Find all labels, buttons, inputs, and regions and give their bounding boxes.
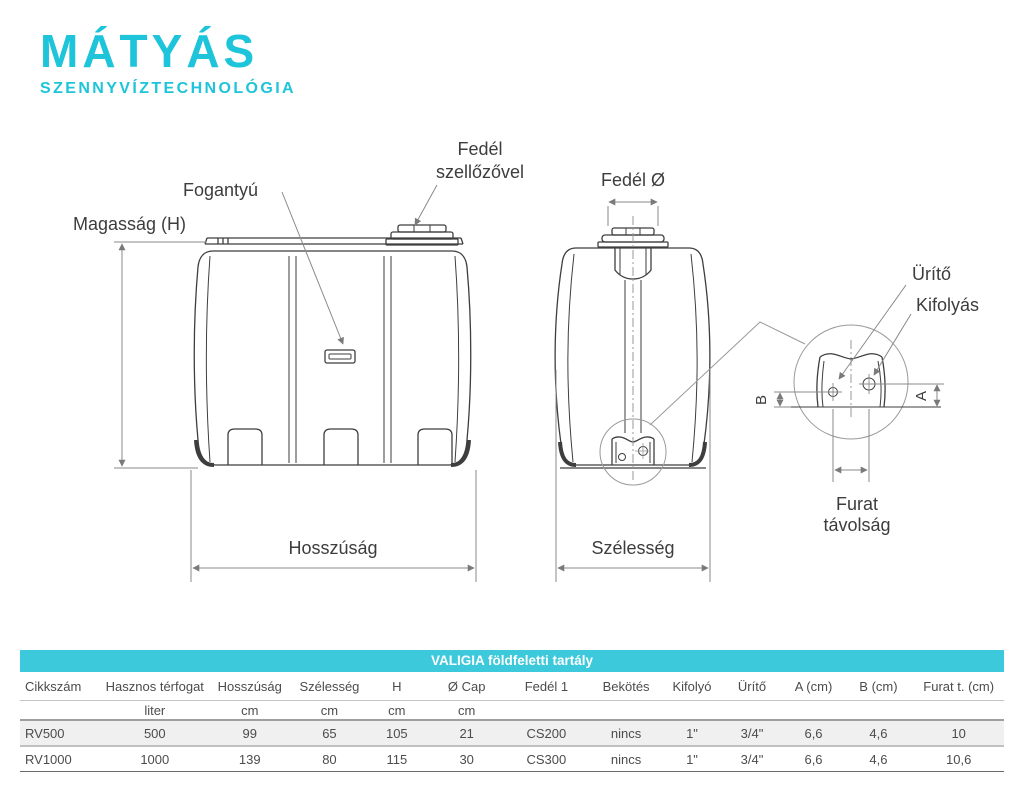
unit-cell bbox=[844, 701, 914, 721]
col-fedel1: Fedél 1 bbox=[504, 672, 589, 701]
label-urito: Ürítő bbox=[912, 264, 951, 284]
cell: 3/4" bbox=[721, 746, 784, 772]
col-urito: Ürítő bbox=[721, 672, 784, 701]
col-szelesseg: Szélesség bbox=[295, 672, 365, 701]
unit-cell bbox=[663, 701, 720, 721]
unit-cell bbox=[504, 701, 589, 721]
label-fedel-line1: Fedél bbox=[457, 139, 502, 159]
logo-title: MÁTYÁS bbox=[40, 28, 296, 74]
col-o-cap: Ø Cap bbox=[429, 672, 504, 701]
cell: 30 bbox=[429, 746, 504, 772]
table-title: VALIGIA földfeletti tartály bbox=[20, 650, 1004, 672]
table-row: RV500 500 99 65 105 21 CS200 nincs 1" 3/… bbox=[20, 720, 1004, 746]
front-view-drawing bbox=[555, 216, 710, 485]
label-furat-line2: távolság bbox=[823, 515, 890, 535]
cell: CS300 bbox=[504, 746, 589, 772]
label-fedel-line2: szellőzővel bbox=[436, 162, 524, 182]
unit-cell bbox=[589, 701, 664, 721]
label-magassag: Magasság (H) bbox=[73, 214, 186, 234]
unit-cell: liter bbox=[105, 701, 205, 721]
cell: 4,6 bbox=[844, 720, 914, 746]
unit-cell bbox=[913, 701, 1004, 721]
unit-cell: cm bbox=[429, 701, 504, 721]
label-dim-a: A bbox=[913, 391, 930, 401]
cell: 10,6 bbox=[913, 746, 1004, 772]
label-kifolyas: Kifolyás bbox=[916, 295, 979, 315]
cell: 1000 bbox=[105, 746, 205, 772]
cell: 80 bbox=[295, 746, 365, 772]
cell: 4,6 bbox=[844, 746, 914, 772]
cell: 65 bbox=[295, 720, 365, 746]
cell: 1" bbox=[663, 746, 720, 772]
spec-table-section: VALIGIA földfeletti tartály Cikkszám Has… bbox=[20, 650, 1004, 772]
label-fedel-o: Fedél Ø bbox=[601, 170, 665, 190]
col-furat-t: Furat t. (cm) bbox=[913, 672, 1004, 701]
label-szelesseg: Szélesség bbox=[591, 538, 674, 558]
unit-cell bbox=[721, 701, 784, 721]
cell: 21 bbox=[429, 720, 504, 746]
detail-view-drawing bbox=[650, 322, 941, 439]
cell: 1" bbox=[663, 720, 720, 746]
page: MÁTYÁS SZENNYVÍZTECHNOLÓGIA bbox=[0, 0, 1024, 799]
table-row: RV1000 1000 139 80 115 30 CS300 nincs 1"… bbox=[20, 746, 1004, 772]
cell: 6,6 bbox=[784, 720, 844, 746]
col-bekotes: Bekötés bbox=[589, 672, 664, 701]
company-logo: MÁTYÁS SZENNYVÍZTECHNOLÓGIA bbox=[40, 28, 296, 98]
cell: 500 bbox=[105, 720, 205, 746]
col-a-cm: A (cm) bbox=[784, 672, 844, 701]
label-furat-line1: Furat bbox=[836, 494, 878, 514]
label-dim-b: B bbox=[753, 395, 770, 405]
unit-cell: cm bbox=[205, 701, 295, 721]
cell: 6,6 bbox=[784, 746, 844, 772]
cell: 139 bbox=[205, 746, 295, 772]
cell: 3/4" bbox=[721, 720, 784, 746]
label-fogantyu: Fogantyú bbox=[183, 180, 258, 200]
label-hosszusag: Hosszúság bbox=[288, 538, 377, 558]
unit-cell: cm bbox=[364, 701, 429, 721]
side-view-drawing bbox=[194, 225, 471, 465]
col-h: H bbox=[364, 672, 429, 701]
cell: CS200 bbox=[504, 720, 589, 746]
col-kifolyo: Kifolyó bbox=[663, 672, 720, 701]
logo-subtitle: SZENNYVÍZTECHNOLÓGIA bbox=[40, 80, 296, 98]
technical-drawing: Magasság (H) Fogantyú Fedél szellőzővel … bbox=[0, 130, 1024, 650]
cell: 105 bbox=[364, 720, 429, 746]
cell: nincs bbox=[589, 746, 664, 772]
unit-cell bbox=[20, 701, 105, 721]
unit-cell: cm bbox=[295, 701, 365, 721]
unit-cell bbox=[784, 701, 844, 721]
cell: 10 bbox=[913, 720, 1004, 746]
col-b-cm: B (cm) bbox=[844, 672, 914, 701]
col-hasznos-terfogat: Hasznos térfogat bbox=[105, 672, 205, 701]
cell: nincs bbox=[589, 720, 664, 746]
spec-table: Cikkszám Hasznos térfogat Hosszúság Szél… bbox=[20, 672, 1004, 772]
cell: RV500 bbox=[20, 720, 105, 746]
cell: 99 bbox=[205, 720, 295, 746]
table-units-row: liter cm cm cm cm bbox=[20, 701, 1004, 721]
cell: RV1000 bbox=[20, 746, 105, 772]
col-cikkszam: Cikkszám bbox=[20, 672, 105, 701]
cell: 115 bbox=[364, 746, 429, 772]
table-header-row: Cikkszám Hasznos térfogat Hosszúság Szél… bbox=[20, 672, 1004, 701]
col-hosszusag: Hosszúság bbox=[205, 672, 295, 701]
